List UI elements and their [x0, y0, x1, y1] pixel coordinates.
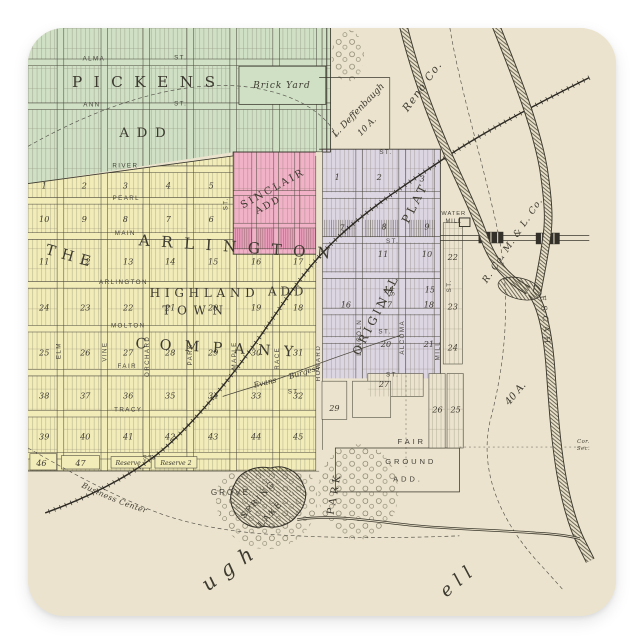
block-number: 38 — [39, 390, 49, 400]
street-race: RACE — [274, 347, 281, 370]
block-number: 33 — [251, 390, 261, 400]
block-number: 34 — [208, 390, 218, 400]
block-number: 18 — [424, 300, 434, 310]
block-number: 31 — [293, 347, 303, 357]
block-number: 26 — [79, 347, 90, 357]
block-number: 47 — [74, 458, 86, 468]
fair-label: FAIR — [398, 437, 426, 446]
square-sticker: PICKENS ADD Brick Yard THE ARLINGTON HIG… — [28, 28, 616, 616]
product-page: PICKENS ADD Brick Yard THE ARLINGTON HIG… — [0, 0, 644, 644]
block-number: 36 — [123, 390, 133, 400]
block-number: 10 — [422, 249, 432, 259]
block-number: 23 — [79, 303, 90, 313]
street-main: MAIN — [115, 230, 136, 237]
block-number: 21 — [164, 303, 175, 313]
block-number: 14 — [384, 284, 394, 294]
block-number: 24 — [38, 303, 49, 313]
street-st: ST. — [446, 279, 453, 292]
block-number: 15 — [425, 284, 435, 294]
street-mill: MILL — [434, 341, 441, 360]
block-number: 23 — [447, 302, 458, 312]
block-number: 37 — [80, 390, 91, 400]
pickens-add-label: PICKENS — [72, 73, 227, 91]
block-number: 28 — [164, 347, 175, 357]
block-number: 11 — [378, 249, 388, 259]
block-number: 16 — [341, 300, 351, 310]
block-number: 27 — [122, 347, 134, 357]
block-number: 42 — [164, 431, 175, 441]
street-st: ST. — [174, 55, 187, 62]
water-mill-label2: MILL — [445, 219, 462, 225]
block-number: 22 — [122, 303, 133, 313]
street-molton: MOLTON — [111, 323, 146, 330]
block-number: 26 — [431, 405, 442, 415]
block-number: 32 — [293, 390, 303, 400]
block-number: 8 — [381, 221, 386, 231]
plat-map: PICKENS ADD Brick Yard THE ARLINGTON HIG… — [28, 28, 616, 616]
street-maple: MAPLE — [231, 341, 238, 369]
block-number: 20 — [380, 339, 391, 349]
street-tracy: TRACY — [114, 407, 142, 414]
block-number: 1 — [335, 172, 340, 182]
street-alma: ALMA — [83, 55, 106, 62]
street-st: ST. — [386, 371, 399, 378]
block-number: 17 — [293, 257, 304, 267]
block-number: 6 — [209, 214, 214, 224]
block-number: 35 — [165, 390, 175, 400]
block-number: 11 — [39, 257, 49, 267]
block-number: 3 — [123, 180, 128, 190]
street-lincoln: LINCOLN — [356, 319, 363, 356]
block-number: 40 — [79, 431, 90, 441]
block-number: 27 — [378, 379, 390, 389]
block-number: 13 — [123, 257, 133, 267]
block-number: 7 — [166, 214, 172, 224]
sec-label: Sec. — [577, 446, 590, 452]
cor-label: Cor. — [577, 439, 590, 445]
block-number: 29 — [328, 403, 339, 413]
block-number: 9 — [82, 214, 87, 224]
block-number: 19 — [251, 303, 261, 313]
street-fair: FAIR — [118, 363, 137, 370]
block-number: 4 — [165, 180, 171, 190]
street-st: ST. — [379, 149, 392, 156]
block-number: 41 — [122, 431, 133, 441]
reserve2-label: Reserve 2 — [159, 460, 191, 467]
street-vine: VINE — [101, 342, 108, 362]
street-arlington: ARLINGTON — [99, 279, 148, 286]
grove-label: GROVE — [211, 488, 250, 497]
street-park: PARK — [187, 343, 194, 365]
block-number: 29 — [207, 347, 218, 357]
block-number: 2 — [376, 172, 382, 182]
street-ann: ANN — [83, 101, 100, 108]
pickens-add-label2: ADD — [118, 126, 173, 141]
block-number: 45 — [292, 431, 303, 441]
block-number: 39 — [39, 431, 49, 441]
block-number: 10 — [39, 214, 49, 224]
street-alcoma: ALCOMA — [399, 320, 406, 355]
street-orchard: ORCHARD — [144, 336, 151, 377]
block-number: 22 — [447, 252, 458, 262]
highland-add-label: ADD — [267, 284, 307, 298]
block-number: 14 — [165, 257, 175, 267]
water-mill-label1: WATER — [441, 211, 466, 217]
block-number: 43 — [207, 431, 218, 441]
street-pearl: PEARL — [113, 195, 140, 202]
block-number: 18 — [293, 303, 303, 313]
street-river: RIVER — [112, 162, 138, 169]
ground-add-label: ADD. — [393, 474, 423, 483]
street-st: ST. — [143, 454, 156, 461]
block-number: 15 — [208, 257, 218, 267]
block-number: 7 — [339, 222, 345, 232]
block-number: 30 — [251, 347, 261, 357]
block-number: 2 — [81, 180, 87, 190]
block-number: 46 — [35, 458, 46, 468]
street-st: ST. — [378, 328, 391, 335]
ground-label: GROUND — [385, 457, 436, 466]
street-elm: ELM — [55, 342, 62, 359]
block-number: 24 — [447, 343, 458, 353]
street-st: ST. — [386, 238, 399, 245]
block-number: 25 — [38, 347, 49, 357]
street-st: ST. — [174, 100, 187, 107]
highland-label: HIGHLAND — [150, 286, 260, 300]
block-number: 44 — [250, 431, 261, 441]
howard-street-gap — [316, 149, 323, 471]
block-number: 20 — [207, 303, 218, 313]
block-number: 21 — [423, 339, 434, 349]
block-number: 5 — [209, 180, 214, 190]
block-number: 3 — [420, 174, 425, 184]
block-number: 16 — [251, 257, 261, 267]
block-number: 1 — [42, 180, 47, 190]
block-number: 9 — [424, 221, 429, 231]
street-howard: HOWARD — [315, 345, 322, 382]
street-st: ST. — [223, 197, 230, 210]
block-number: 25 — [449, 405, 460, 415]
block-number: 12 — [80, 257, 90, 267]
block-number: 8 — [123, 214, 128, 224]
block-number: 17 — [382, 300, 393, 310]
brick-yard-label: Brick Yard — [252, 81, 311, 91]
